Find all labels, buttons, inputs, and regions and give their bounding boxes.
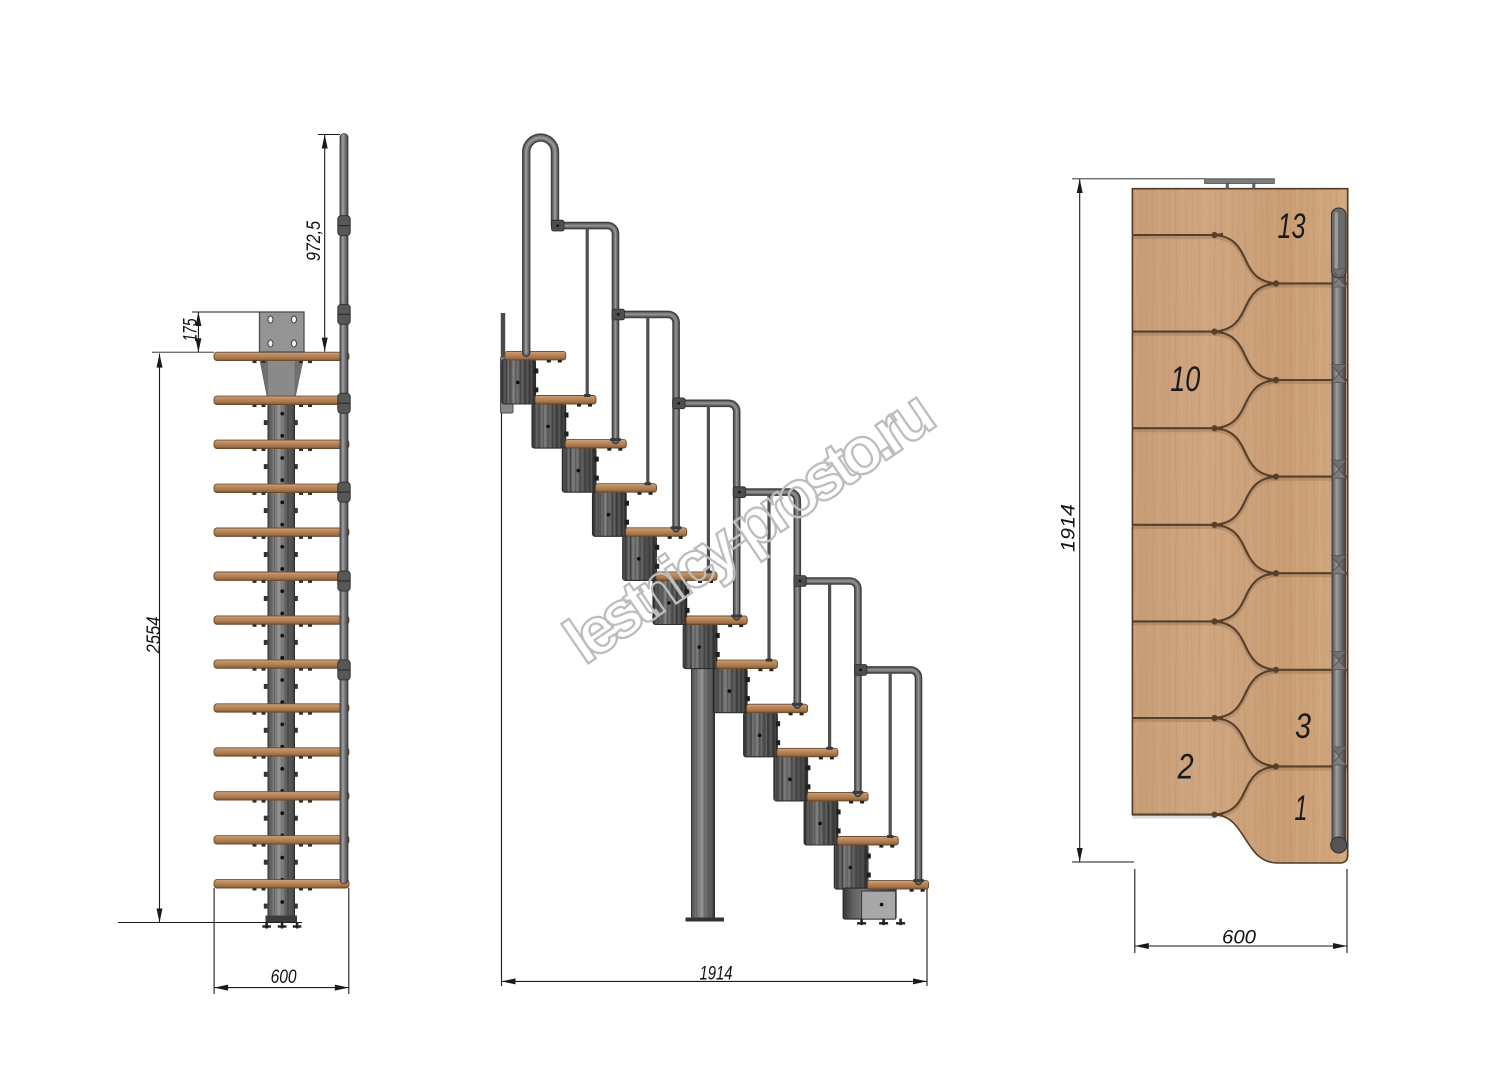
svg-text:10: 10 [1170,360,1200,399]
svg-text:2554: 2554 [144,617,165,655]
svg-text:600: 600 [1222,928,1256,949]
svg-text:2: 2 [1177,748,1194,787]
svg-text:3: 3 [1295,707,1311,746]
svg-text:600: 600 [271,967,297,988]
svg-text:1: 1 [1295,789,1308,828]
svg-text:13: 13 [1278,207,1306,246]
svg-text:1914: 1914 [700,964,733,985]
svg-text:1914: 1914 [1059,504,1080,552]
svg-text:972,5: 972,5 [304,221,325,261]
svg-text:175: 175 [181,318,202,341]
